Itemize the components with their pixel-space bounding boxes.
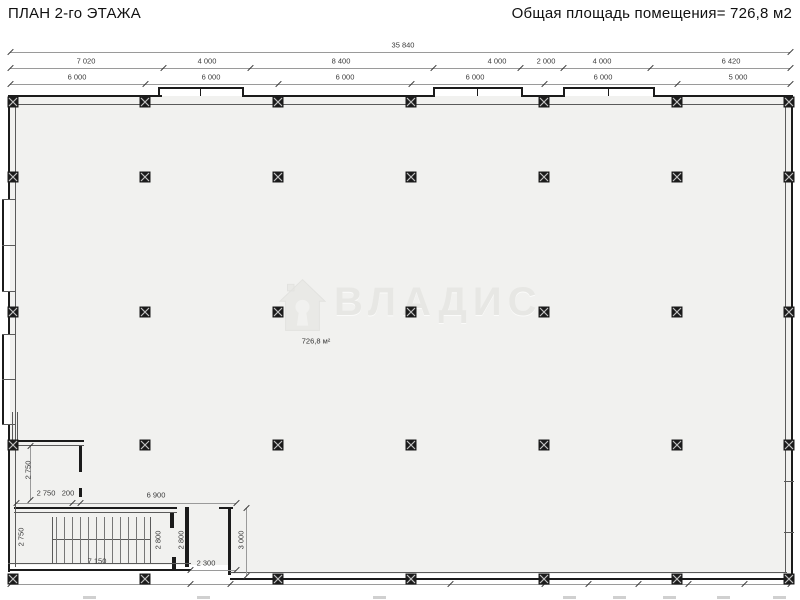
stair-tread [56,517,57,563]
dimension-label: 3 000 [237,531,245,550]
structural-column [406,572,417,583]
clipped-dimension-label [197,596,210,599]
structural-column [273,438,284,449]
room-area-label: 726,8 м² [302,337,331,346]
structural-column [539,170,550,181]
structural-column [8,572,19,583]
structural-column [672,305,683,316]
dimension-label: 7 150 [88,557,107,565]
dimension-label: 2 750 [17,528,25,547]
structural-column [784,305,795,316]
dimension-line [10,52,790,53]
stair-tread [72,517,73,563]
tick-mark [787,65,793,71]
dimension-label: 2 000 [537,57,556,65]
structural-column [140,305,151,316]
wall-inner-line [784,481,794,482]
clipped-dimension-label [373,596,386,599]
structural-column [8,170,19,181]
dimension-label: 6 900 [147,491,166,499]
dimension-label: 2 750 [37,489,56,497]
dimension-line [190,570,236,571]
wall-line [79,488,82,497]
dimension-label: 7 020 [77,57,96,65]
stair-tread [136,517,137,563]
wall-inner-line [230,572,787,573]
wall-inner-line [14,512,177,513]
structural-column [672,170,683,181]
structural-column [406,438,417,449]
dimension-label: 6 000 [202,73,221,81]
clipped-dimension-label [613,596,626,599]
stair-tread [64,517,65,563]
wall-line [14,440,84,442]
wall-inner-line [784,532,794,533]
wall-line [242,95,433,97]
clipped-dimension-label [663,596,676,599]
dimension-label: 4 000 [488,57,507,65]
wall-line [563,87,565,97]
structural-column [8,95,19,106]
dimension-label: 35 840 [392,41,415,49]
dimension-line [16,503,236,504]
wall-inner-line [52,517,53,563]
structural-column [784,170,795,181]
wall-line [791,95,793,580]
wall-line [185,507,189,567]
wall-line [14,507,177,509]
wall-inner-line [2,424,15,425]
dimension-label: 4 000 [593,57,612,65]
structural-column [406,95,417,106]
wall-line [170,512,174,528]
wall-inner-line [2,334,15,335]
structural-column [273,572,284,583]
wall-line [8,95,10,200]
dimension-label: 2 300 [197,559,216,567]
dimension-label: 2 800 [177,531,185,550]
dimension-label: 6 000 [336,73,355,81]
structural-column [8,305,19,316]
dimension-label: 6 000 [594,73,613,81]
structural-column [539,572,550,583]
wall-inner-line [2,379,15,380]
wall-inner-line [14,445,84,446]
stair-tread [144,517,145,563]
structural-column [784,438,795,449]
dimension-line [10,68,790,69]
structural-column [273,95,284,106]
total-area-title: Общая площадь помещения= 726,8 м2 [512,5,792,22]
stair-tread [120,517,121,563]
wall-line [158,87,160,97]
clipped-dimension-label [83,596,96,599]
stair-tread [128,517,129,563]
dimension-label: 2 750 [24,461,32,480]
dimension-label: 200 [62,489,75,497]
wall-inner-line [2,245,15,246]
structural-column [539,95,550,106]
wall-line [228,507,231,575]
floor-fill [10,96,793,565]
structural-column [273,170,284,181]
wall-inner-line [2,199,15,200]
wall-line [200,88,201,96]
wall-line [158,87,244,89]
structural-column [784,95,795,106]
stair-tread [80,517,81,563]
dimension-line [10,84,790,85]
wall-line [433,87,435,97]
structural-column [539,305,550,316]
dimension-label: 2 800 [154,531,162,550]
structural-column [406,305,417,316]
tick-mark [787,49,793,55]
wall-line [477,88,478,96]
dimension-label: 6 000 [68,73,87,81]
dimension-label: 8 400 [332,57,351,65]
structural-column [140,438,151,449]
dimension-label: 5 000 [729,73,748,81]
tick-mark [787,81,793,87]
structural-column [672,95,683,106]
wall-line [608,88,609,96]
floor-plan-canvas: ВЛАДИС ПЛАН 2-го ЭТАЖА Общая площадь пом… [0,0,800,600]
plan-title: ПЛАН 2-го ЭТАЖА [8,5,141,22]
wall-line [521,87,523,97]
dimension-label: 6 000 [466,73,485,81]
wall-inner-line [150,517,151,563]
wall-line [8,569,191,571]
wall-inner-line [2,291,15,292]
wall-line [653,87,655,97]
wall-line [230,578,793,580]
structural-column [539,438,550,449]
clipped-dimension-label [563,596,576,599]
dimension-label: 4 000 [198,57,217,65]
wall-line [242,87,244,97]
dimension-line [246,508,247,576]
structural-column [672,572,683,583]
clipped-dimension-label [717,596,730,599]
structural-column [672,438,683,449]
structural-column [784,572,795,583]
structural-column [8,438,19,449]
structural-column [273,305,284,316]
wall-line [433,87,523,89]
structural-column [140,95,151,106]
wall-line [172,557,176,571]
structural-column [140,170,151,181]
stair-tread [112,517,113,563]
dimension-label: 6 420 [722,57,741,65]
structural-column [406,170,417,181]
wall-line [79,445,82,472]
structural-column [140,572,151,583]
clipped-dimension-label [773,596,786,599]
wall-line [563,87,655,89]
